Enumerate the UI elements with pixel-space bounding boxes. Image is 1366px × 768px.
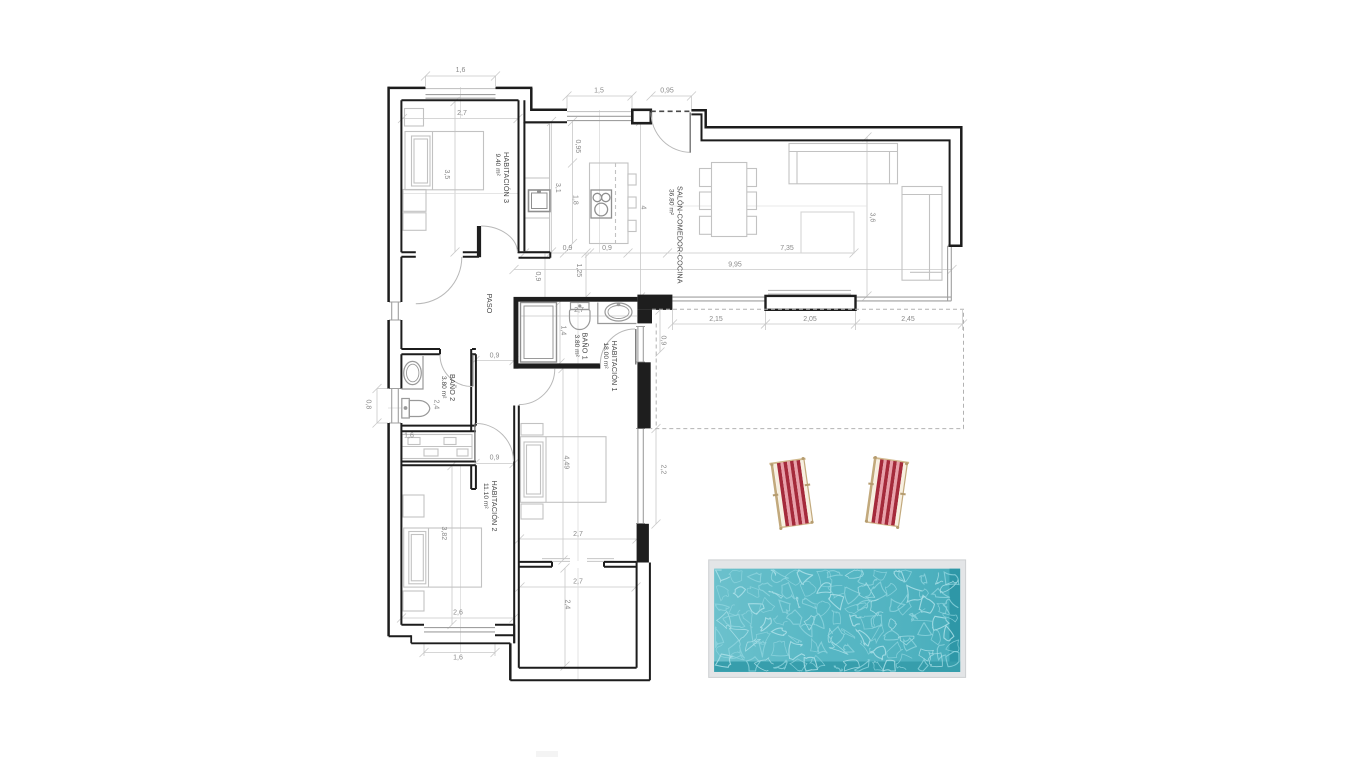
svg-text:9.40 m²: 9.40 m² <box>494 154 501 177</box>
svg-text:2,05: 2,05 <box>803 316 817 323</box>
svg-text:3,1: 3,1 <box>554 183 561 193</box>
svg-text:0,9: 0,9 <box>490 353 500 360</box>
svg-text:4,49: 4,49 <box>563 456 570 470</box>
svg-text:2,4: 2,4 <box>564 600 571 610</box>
svg-text:0,9: 0,9 <box>490 455 500 462</box>
svg-text:2,7: 2,7 <box>573 579 583 586</box>
svg-text:1,25: 1,25 <box>575 264 582 278</box>
svg-text:2,7: 2,7 <box>573 531 583 538</box>
svg-text:2,45: 2,45 <box>901 316 915 323</box>
svg-text:HABITACIÓN 1: HABITACIÓN 1 <box>610 341 619 392</box>
svg-text:11.10 m²: 11.10 m² <box>482 483 489 509</box>
svg-text:PASO: PASO <box>485 294 494 314</box>
svg-text:3.80 m²: 3.80 m² <box>573 335 580 358</box>
svg-text:2,6: 2,6 <box>453 610 463 617</box>
svg-text:2,7: 2,7 <box>457 110 467 117</box>
svg-text:SALÓN-COMEDOR-COCINA: SALÓN-COMEDOR-COCINA <box>676 186 685 284</box>
svg-text:2,2: 2,2 <box>660 465 667 475</box>
svg-text:1,6: 1,6 <box>453 655 463 662</box>
svg-text:18.00 m²: 18.00 m² <box>602 343 609 370</box>
svg-text:1,6: 1,6 <box>404 433 414 440</box>
svg-text:BAÑO 2: BAÑO 2 <box>448 374 457 401</box>
svg-text:36.80 m²: 36.80 m² <box>668 189 675 216</box>
svg-text:3,82: 3,82 <box>440 527 447 541</box>
svg-text:2,4: 2,4 <box>433 400 440 410</box>
svg-text:0,9: 0,9 <box>602 245 612 252</box>
svg-text:3.80 m²: 3.80 m² <box>440 376 447 399</box>
svg-text:0,95: 0,95 <box>660 88 674 95</box>
svg-text:1,5: 1,5 <box>594 88 604 95</box>
svg-text:0,9: 0,9 <box>563 245 573 252</box>
svg-text:4: 4 <box>640 206 647 210</box>
svg-text:0,95: 0,95 <box>574 140 581 154</box>
svg-text:BAÑO 1: BAÑO 1 <box>580 333 589 360</box>
svg-text:1,6: 1,6 <box>456 67 466 74</box>
svg-text:HABITACIÓN 2: HABITACIÓN 2 <box>490 481 499 532</box>
svg-text:0,9: 0,9 <box>534 272 541 282</box>
svg-text:2,15: 2,15 <box>709 316 723 323</box>
svg-text:9,95: 9,95 <box>728 262 742 269</box>
svg-text:3,6: 3,6 <box>869 213 876 223</box>
svg-text:2,7: 2,7 <box>574 307 584 314</box>
svg-text:7,35: 7,35 <box>780 245 794 252</box>
svg-text:1,4: 1,4 <box>560 326 567 336</box>
svg-text:0,8: 0,8 <box>365 400 372 410</box>
svg-text:3,5: 3,5 <box>443 170 450 180</box>
svg-text:0,9: 0,9 <box>660 336 667 346</box>
svg-text:HABITACIÓN 3: HABITACIÓN 3 <box>502 152 511 203</box>
svg-text:1,8: 1,8 <box>572 195 579 205</box>
